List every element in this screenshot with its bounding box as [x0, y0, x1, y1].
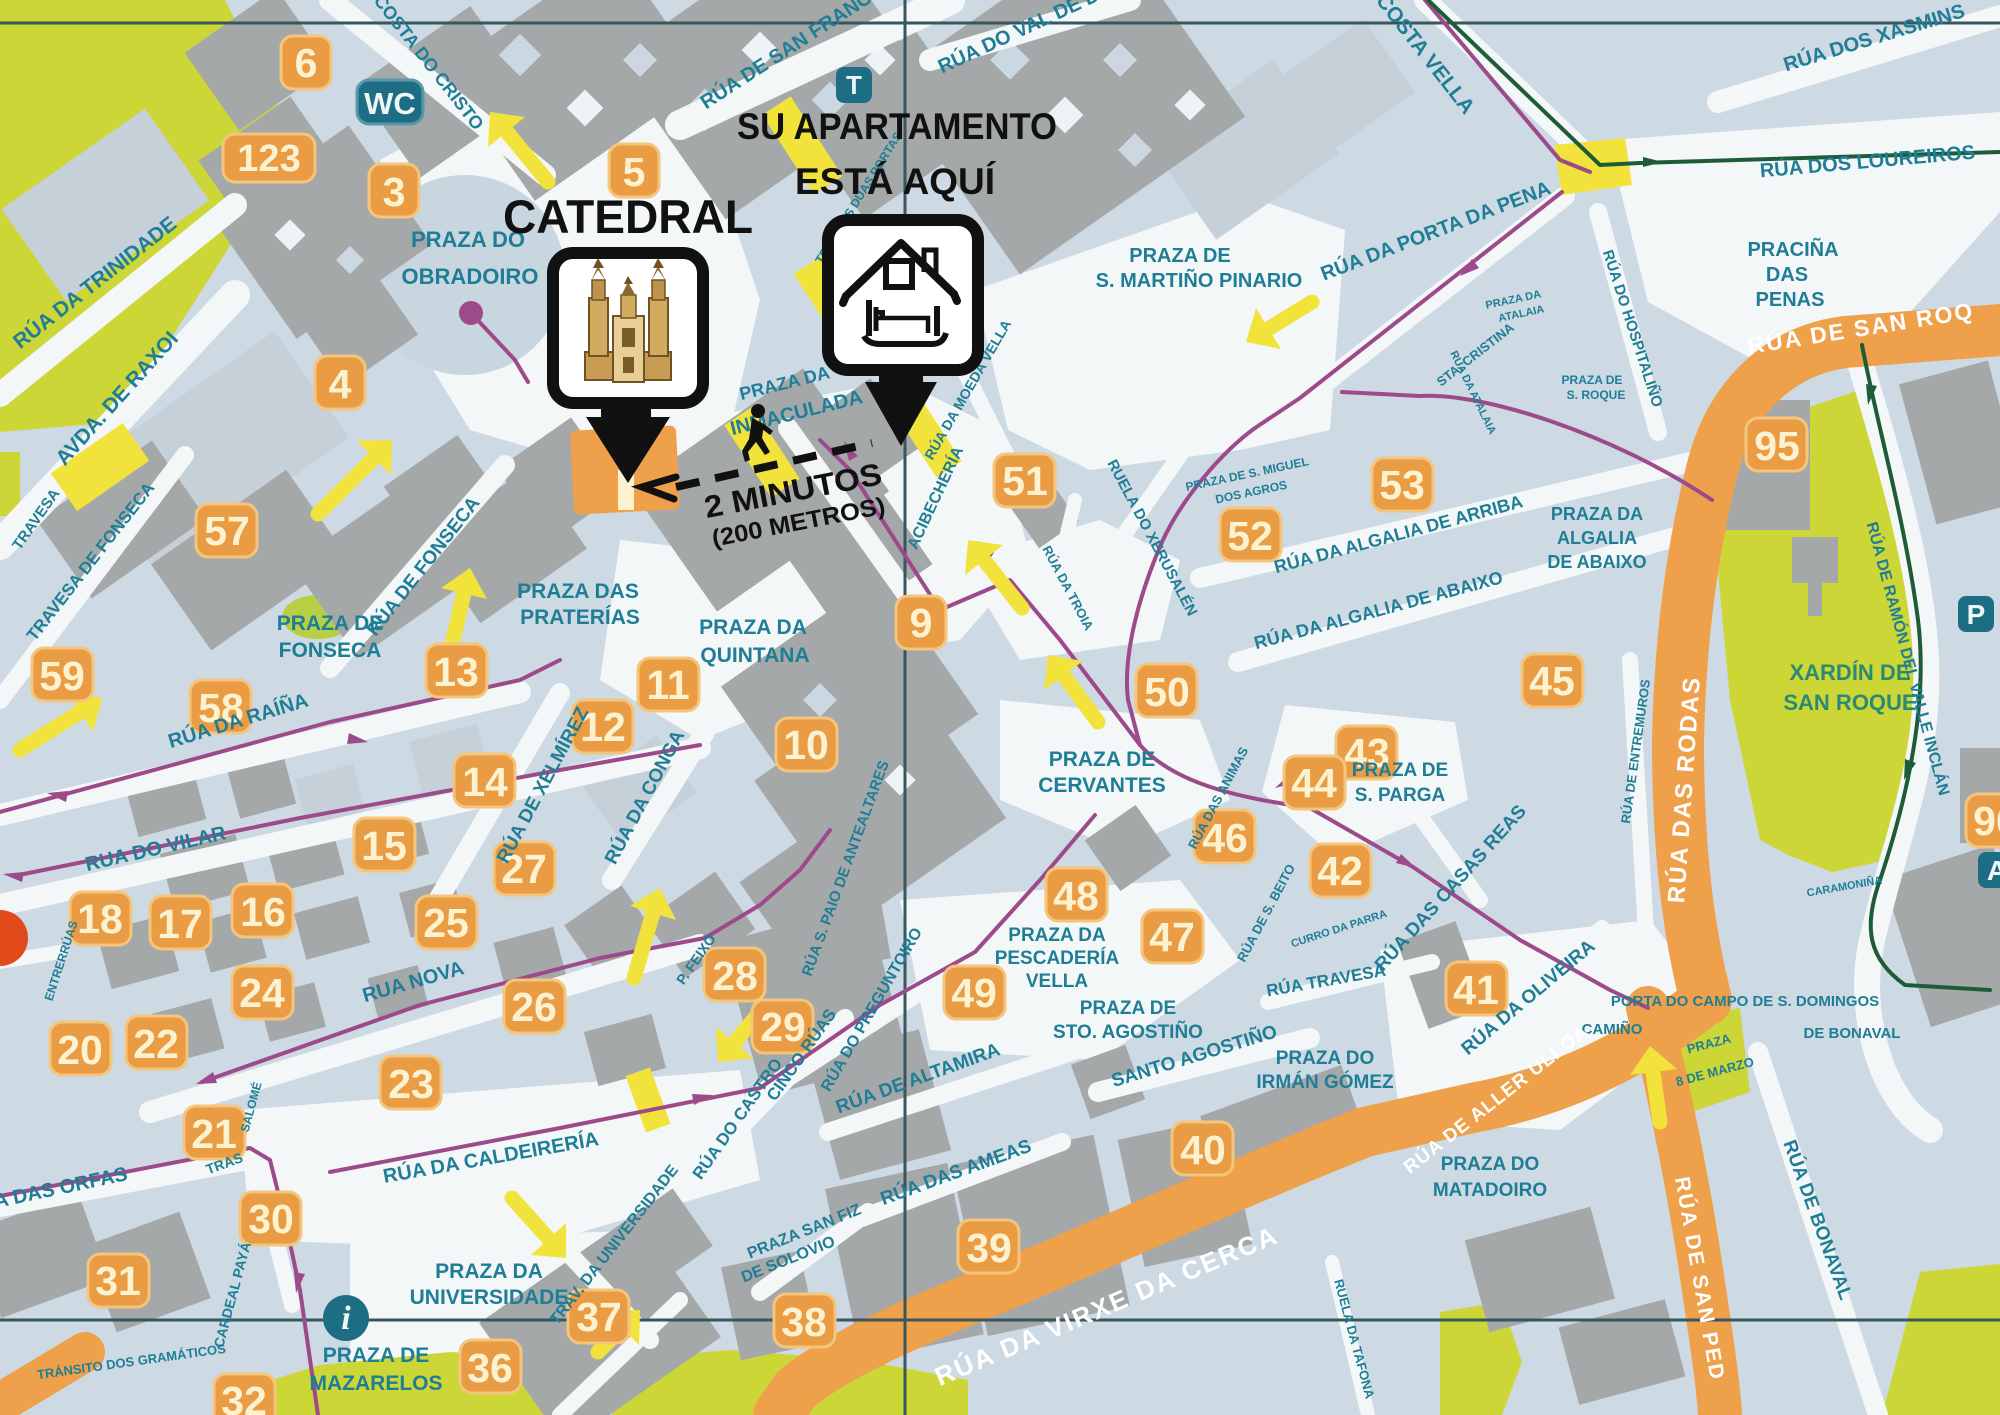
svg-text:i: i: [341, 1300, 351, 1337]
svg-text:PRAZA DA: PRAZA DA: [1008, 925, 1106, 946]
svg-text:XARDÍN DE: XARDÍN DE: [1789, 660, 1910, 685]
svg-text:45: 45: [1529, 658, 1575, 704]
svg-text:SAN ROQUE: SAN ROQUE: [1783, 690, 1916, 715]
svg-text:PRAZA DA: PRAZA DA: [699, 616, 807, 639]
svg-text:5: 5: [623, 149, 646, 195]
svg-text:37: 37: [576, 1294, 622, 1340]
svg-text:PRAZA DO: PRAZA DO: [1441, 1154, 1540, 1175]
svg-text:WC: WC: [364, 86, 416, 121]
svg-text:DAS: DAS: [1766, 264, 1808, 286]
svg-text:S. MARTIÑO PINARIO: S. MARTIÑO PINARIO: [1096, 269, 1303, 292]
svg-text:59: 59: [39, 653, 85, 699]
svg-text:VELLA: VELLA: [1026, 971, 1089, 992]
svg-text:ESTÁ AQUÍ: ESTÁ AQUÍ: [795, 161, 997, 202]
svg-text:21: 21: [191, 1111, 237, 1157]
svg-text:S. PARGA: S. PARGA: [1355, 785, 1446, 806]
svg-text:PRAZA DE: PRAZA DE: [1049, 748, 1156, 771]
svg-text:51: 51: [1002, 458, 1048, 504]
svg-text:ALGALIA: ALGALIA: [1557, 528, 1637, 548]
svg-text:OBRADOIRO: OBRADOIRO: [402, 264, 539, 289]
svg-text:14: 14: [462, 759, 508, 805]
svg-text:PRAZA DA: PRAZA DA: [1551, 504, 1643, 524]
svg-text:P: P: [1967, 599, 1986, 630]
svg-text:47: 47: [1149, 914, 1195, 960]
svg-text:41: 41: [1453, 967, 1499, 1013]
svg-text:DE BONAVAL: DE BONAVAL: [1804, 1025, 1901, 1042]
svg-text:MATADOIRO: MATADOIRO: [1433, 1180, 1547, 1201]
svg-text:48: 48: [1053, 873, 1099, 919]
svg-text:36: 36: [467, 1345, 513, 1391]
svg-text:CATEDRAL: CATEDRAL: [503, 190, 753, 243]
svg-text:96: 96: [1973, 798, 2000, 844]
svg-text:31: 31: [95, 1258, 141, 1304]
svg-text:23: 23: [388, 1061, 434, 1107]
svg-text:PRAZA DAS: PRAZA DAS: [517, 580, 639, 603]
svg-text:PRATERÍAS: PRATERÍAS: [520, 606, 640, 629]
svg-text:16: 16: [240, 889, 286, 935]
svg-text:UNIVERSIDADE: UNIVERSIDADE: [410, 1286, 569, 1309]
svg-text:PRAZA DE: PRAZA DE: [1080, 998, 1176, 1019]
svg-text:39: 39: [966, 1225, 1012, 1271]
svg-text:18: 18: [77, 896, 123, 942]
svg-text:44: 44: [1291, 760, 1337, 806]
svg-text:13: 13: [433, 649, 479, 695]
svg-text:123: 123: [237, 138, 300, 180]
svg-text:T: T: [846, 70, 862, 100]
svg-text:15: 15: [361, 823, 407, 869]
svg-text:49: 49: [951, 970, 997, 1016]
svg-text:10: 10: [783, 722, 829, 768]
svg-text:PENAS: PENAS: [1756, 289, 1825, 311]
svg-text:32: 32: [221, 1378, 267, 1415]
svg-text:50: 50: [1144, 669, 1190, 715]
svg-text:57: 57: [204, 508, 250, 554]
svg-text:3: 3: [383, 169, 406, 215]
svg-text:PRAZA DO: PRAZA DO: [1276, 1048, 1375, 1069]
svg-text:CERVANTES: CERVANTES: [1038, 774, 1166, 797]
svg-text:38: 38: [781, 1299, 827, 1345]
svg-text:PRAZA DE: PRAZA DE: [1352, 760, 1448, 781]
svg-text:40: 40: [1180, 1127, 1226, 1173]
svg-text:PRAZA DE: PRAZA DE: [1562, 373, 1623, 387]
svg-text:28: 28: [712, 953, 758, 999]
svg-text:QUINTANA: QUINTANA: [700, 644, 809, 667]
svg-text:17: 17: [157, 901, 203, 947]
svg-text:IRMÁN GÓMEZ: IRMÁN GÓMEZ: [1256, 1071, 1394, 1093]
svg-text:PORTA DO CAMPO DE S. DOMINGOS: PORTA DO CAMPO DE S. DOMINGOS: [1611, 993, 1879, 1010]
svg-text:6: 6: [295, 40, 318, 86]
svg-text:PRAZA DA: PRAZA DA: [435, 1260, 543, 1283]
svg-text:A: A: [1987, 855, 2000, 886]
svg-text:26: 26: [511, 984, 557, 1030]
svg-text:9: 9: [910, 600, 933, 646]
svg-text:S. ROQUE: S. ROQUE: [1567, 388, 1626, 402]
svg-text:PRAZA DE: PRAZA DE: [323, 1344, 430, 1367]
svg-text:52: 52: [1227, 513, 1273, 559]
svg-text:PESCADERÍA: PESCADERÍA: [995, 947, 1120, 969]
svg-text:30: 30: [248, 1196, 294, 1242]
svg-text:SU APARTAMENTO: SU APARTAMENTO: [737, 106, 1057, 147]
svg-text:95: 95: [1754, 423, 1800, 469]
svg-text:MAZARELOS: MAZARELOS: [310, 1372, 443, 1395]
svg-text:11: 11: [646, 662, 689, 708]
svg-text:DE ABAIXO: DE ABAIXO: [1547, 552, 1646, 572]
svg-text:24: 24: [239, 970, 285, 1016]
svg-text:PRAZA DE: PRAZA DE: [1129, 245, 1230, 267]
svg-text:22: 22: [133, 1021, 179, 1067]
svg-text:PRACIÑA: PRACIÑA: [1747, 238, 1838, 261]
svg-text:4: 4: [329, 361, 352, 407]
svg-text:FONSECA: FONSECA: [279, 639, 382, 662]
svg-text:42: 42: [1317, 848, 1363, 894]
svg-text:25: 25: [423, 900, 469, 946]
svg-text:STO. AGOSTIÑO: STO. AGOSTIÑO: [1053, 1021, 1203, 1043]
svg-text:53: 53: [1379, 462, 1425, 508]
svg-text:20: 20: [57, 1027, 103, 1073]
